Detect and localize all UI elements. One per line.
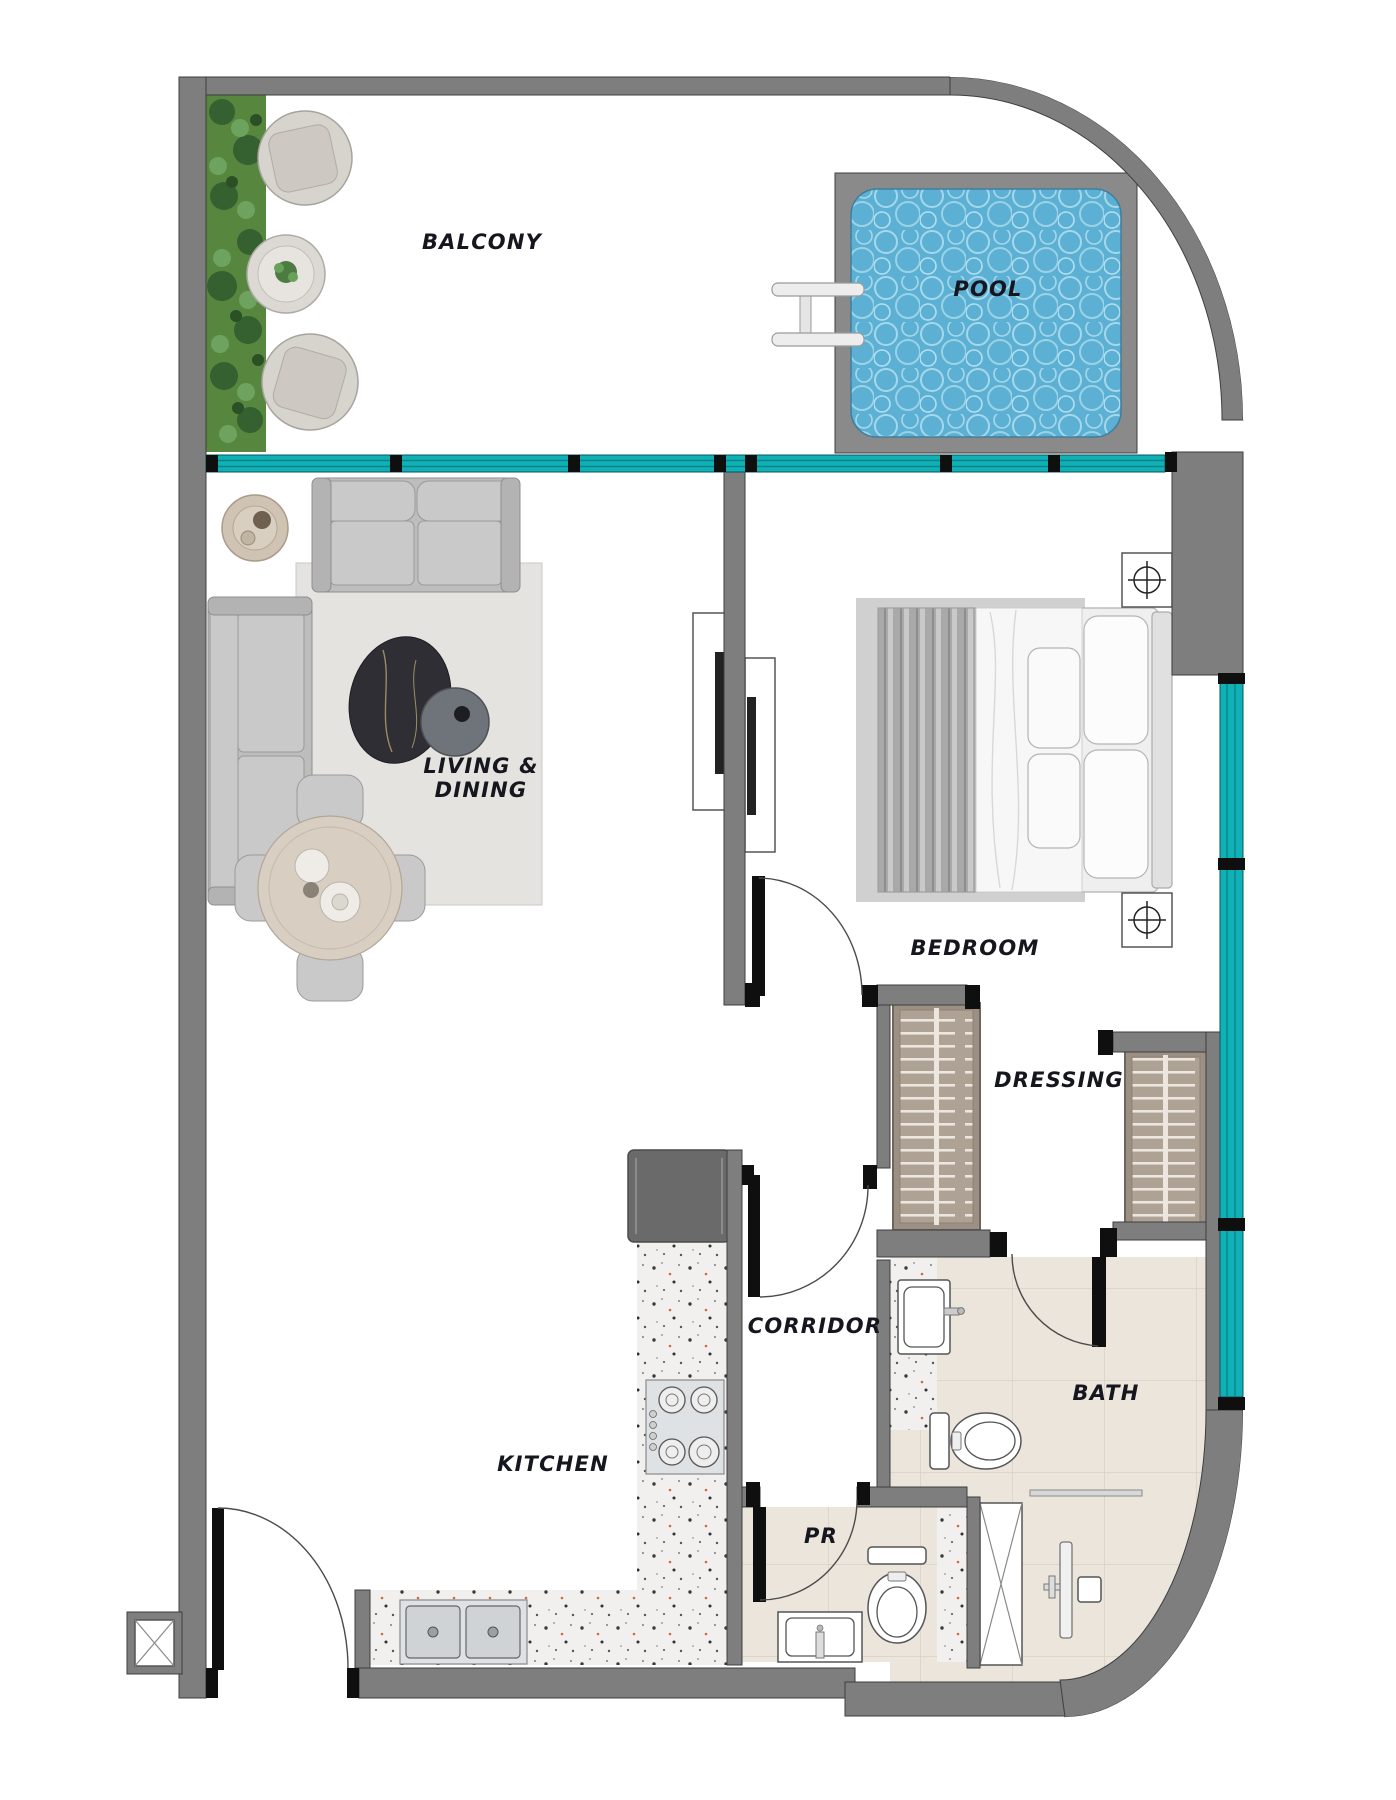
wardrobe-icon: [1125, 1050, 1207, 1230]
corridor-label: CORRIDOR: [748, 1314, 882, 1338]
tv-unit-bedroom: [745, 658, 775, 852]
tv-icon: [715, 652, 724, 774]
side-table-icon: [222, 495, 288, 561]
living-dining-label-line2: DINING: [435, 778, 528, 802]
floor-plan-drawing: BALCONY POOL LIVING & DINING BEDROOM DRE…: [0, 0, 1396, 1800]
service-shaft-icon: [980, 1503, 1022, 1665]
kitchen-label: KITCHEN: [497, 1452, 609, 1476]
tv-unit-living: [693, 613, 725, 810]
bath-label: BATH: [1073, 1381, 1140, 1405]
pillow: [1028, 648, 1080, 748]
pillow: [1084, 616, 1148, 744]
bath-door-leaf: [1092, 1257, 1106, 1347]
corridor-door-leaf: [748, 1175, 760, 1297]
window-band-top: [206, 455, 1165, 472]
window-band-right: [1220, 683, 1243, 1397]
pool-label: POOL: [953, 277, 1022, 301]
pr-basin-icon: [778, 1612, 862, 1662]
toilet-icon: [930, 1413, 1021, 1469]
bedroom-label: BEDROOM: [911, 936, 1040, 960]
sofa-two-seat: [312, 478, 520, 592]
gas-hob-icon: [646, 1380, 724, 1474]
toilet-icon: [868, 1547, 926, 1643]
pr-door-leaf: [753, 1507, 766, 1602]
kitchen-sink-icon: [400, 1600, 527, 1664]
balcony-label: BALCONY: [422, 230, 543, 254]
pool: [835, 173, 1137, 453]
living-dining-label-line1: LIVING &: [423, 754, 538, 778]
nightstand-lamp-icon: [1122, 553, 1172, 607]
pool-water: [851, 189, 1121, 437]
entrance-door-leaf: [212, 1508, 224, 1670]
balcony-table-icon: [247, 235, 325, 313]
double-bed: [878, 608, 1172, 892]
pillow: [1028, 754, 1080, 848]
floor-plan-page: BALCONY POOL LIVING & DINING BEDROOM DRE…: [0, 0, 1396, 1800]
tv-icon: [747, 697, 756, 815]
bedroom-door-leaf: [752, 876, 765, 996]
headboard: [1152, 612, 1172, 888]
dressing-label: DRESSING: [994, 1068, 1124, 1092]
pillow: [1084, 750, 1148, 878]
wardrobe-icon: [893, 1003, 980, 1230]
refrigerator-icon: [628, 1150, 730, 1242]
pr-label: PR: [804, 1524, 838, 1548]
towel-rail-icon: [1030, 1490, 1142, 1496]
nightstand-lamp-icon: [1122, 893, 1172, 947]
counter-end-wall: [355, 1590, 370, 1668]
